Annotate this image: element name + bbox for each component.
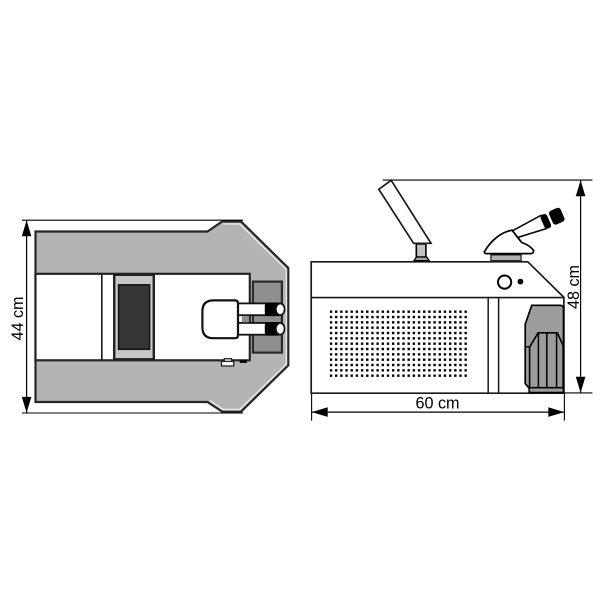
svg-text:48 cm: 48 cm bbox=[565, 265, 583, 309]
svg-text:44 cm: 44 cm bbox=[9, 296, 27, 340]
svg-text:60 cm: 60 cm bbox=[415, 394, 459, 412]
